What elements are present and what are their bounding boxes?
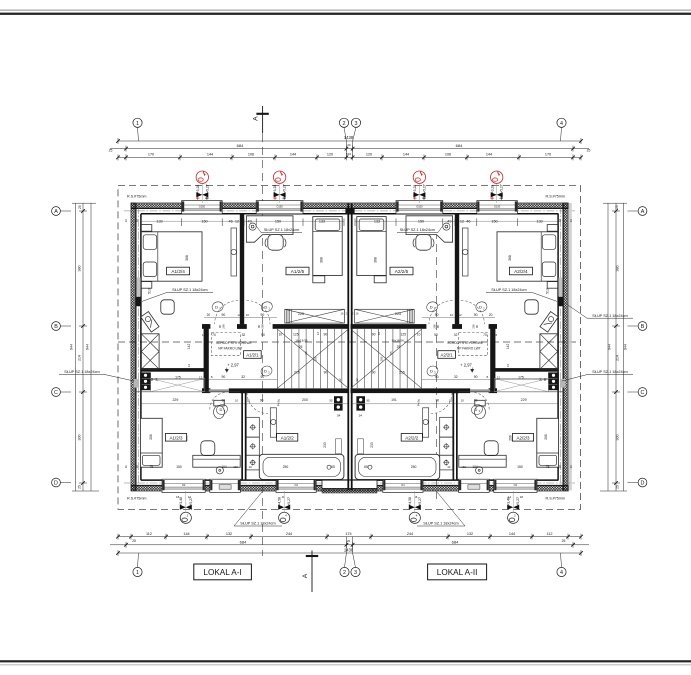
svg-text:66: 66	[543, 378, 547, 381]
svg-text:4: 4	[560, 121, 563, 127]
svg-text:R.S.#75mm: R.S.#75mm	[127, 195, 146, 199]
svg-text:R.S.#75mm: R.S.#75mm	[546, 195, 565, 199]
svg-text:O150: O150	[416, 205, 423, 209]
svg-text:90: 90	[436, 398, 440, 402]
svg-text:65: 65	[331, 465, 335, 469]
svg-text:4: 4	[560, 570, 563, 576]
svg-text:200: 200	[472, 324, 476, 329]
svg-text:16: 16	[569, 219, 573, 223]
svg-text:95: 95	[329, 398, 333, 402]
svg-text:C: C	[641, 390, 645, 396]
svg-text:10: 10	[447, 465, 451, 469]
svg-text:x62: x62	[233, 465, 238, 469]
svg-text:368: 368	[185, 255, 189, 261]
svg-text:90: 90	[474, 313, 478, 317]
svg-text:O4: O4	[294, 483, 298, 487]
svg-text:186: 186	[380, 356, 384, 361]
svg-text:66: 66	[150, 378, 154, 381]
svg-text:10: 10	[450, 313, 454, 317]
svg-text:90: 90	[474, 375, 478, 379]
svg-text:+3,28: +3,28	[196, 185, 200, 194]
svg-text:LOKAL A-II: LOKAL A-II	[437, 568, 478, 577]
svg-text:12: 12	[199, 375, 203, 379]
svg-text:944: 944	[86, 344, 90, 350]
svg-text:+3,48: +3,48	[507, 497, 511, 506]
svg-text:70: 70	[483, 333, 487, 337]
svg-text:18: 18	[135, 465, 139, 469]
svg-text:95: 95	[366, 398, 370, 402]
svg-text:12: 12	[316, 332, 320, 336]
svg-text:142: 142	[506, 343, 510, 349]
svg-text:90: 90	[260, 398, 264, 402]
svg-text:250: 250	[283, 465, 289, 469]
svg-text:32: 32	[241, 375, 245, 379]
svg-text:32: 32	[454, 333, 458, 337]
svg-text:16: 16	[569, 465, 573, 469]
svg-text:510: 510	[545, 288, 549, 294]
svg-text:225: 225	[298, 312, 304, 316]
svg-text:R.S.#75mm: R.S.#75mm	[546, 497, 565, 501]
svg-text:SCHODY STRYCHOWE: SCHODY STRYCHOWE	[216, 341, 253, 345]
svg-text:16x18,56: 16x18,56	[295, 339, 308, 343]
svg-text:944: 944	[607, 344, 611, 350]
svg-text:12: 12	[187, 364, 191, 368]
svg-text:A1/2/4: A1/2/4	[171, 269, 185, 274]
svg-text:90: 90	[324, 332, 328, 336]
svg-text:684: 684	[237, 143, 244, 148]
svg-text:12: 12	[377, 332, 381, 336]
svg-text:+3,28: +3,28	[273, 185, 277, 194]
svg-text:18: 18	[558, 465, 562, 469]
svg-text:SŁUP SZ.1 18x24cm: SŁUP SZ.1 18x24cm	[592, 370, 627, 374]
svg-text:+3,28: +3,28	[413, 185, 417, 194]
svg-text:SŁUP SZ.1 18x24cm: SŁUP SZ.1 18x24cm	[423, 522, 458, 526]
svg-text:300: 300	[78, 435, 82, 441]
svg-text:200: 200	[221, 324, 225, 329]
svg-text:25: 25	[562, 539, 566, 543]
svg-text:229: 229	[521, 398, 527, 402]
svg-text:684: 684	[240, 539, 247, 544]
svg-text:90: 90	[434, 333, 438, 337]
svg-text:944: 944	[624, 344, 628, 350]
svg-text:+5,27: +5,27	[287, 497, 291, 506]
svg-text:34: 34	[337, 413, 341, 417]
svg-text:380: 380	[615, 266, 619, 272]
svg-text:186: 186	[313, 356, 317, 361]
svg-text:SŁUP SZ.1 18x24cm: SŁUP SZ.1 18x24cm	[491, 288, 526, 292]
svg-text:A: A	[252, 116, 259, 121]
svg-text:20: 20	[347, 143, 351, 147]
svg-text:O2: O2	[182, 483, 186, 487]
svg-text:8: 8	[211, 375, 213, 379]
svg-text:944: 944	[70, 344, 74, 350]
svg-text:A: A	[302, 573, 309, 578]
svg-text:684: 684	[452, 539, 459, 544]
svg-text:12: 12	[338, 378, 342, 382]
svg-text:O2: O2	[514, 483, 518, 487]
svg-text:B: B	[54, 324, 58, 330]
svg-text:233: 233	[370, 442, 374, 448]
svg-text:18: 18	[558, 219, 562, 223]
svg-text:+ 2,97: + 2,97	[460, 363, 472, 368]
svg-text:20: 20	[207, 313, 211, 317]
svg-text:+3,48: +3,48	[179, 497, 183, 506]
svg-text:90: 90	[261, 313, 265, 317]
svg-text:SŁUP SZ.1 18x24cm: SŁUP SZ.1 18x24cm	[592, 314, 627, 318]
svg-text:18: 18	[135, 219, 139, 223]
svg-text:250: 250	[411, 465, 417, 469]
svg-text:150: 150	[176, 465, 182, 469]
svg-text:32: 32	[454, 375, 458, 379]
svg-text:1: 1	[136, 121, 139, 127]
svg-text:10: 10	[246, 313, 250, 317]
svg-text:P+Su: P+Su	[277, 398, 281, 406]
svg-text:D: D	[475, 407, 478, 412]
svg-text:D: D	[479, 304, 482, 309]
svg-text:16: 16	[202, 333, 206, 337]
svg-text:+5,27: +5,27	[418, 497, 422, 506]
svg-text:368: 368	[508, 255, 512, 261]
svg-text:10: 10	[247, 398, 251, 402]
svg-text:12: 12	[458, 313, 462, 317]
svg-text:300: 300	[615, 435, 619, 441]
svg-text:380: 380	[78, 266, 82, 272]
svg-text:10: 10	[249, 465, 253, 469]
svg-text:25: 25	[132, 539, 136, 543]
svg-text:90: 90	[435, 375, 439, 379]
svg-text:229: 229	[172, 398, 178, 402]
svg-text:NP FAKRO LWT: NP FAKRO LWT	[457, 347, 481, 351]
svg-text:54: 54	[154, 378, 158, 381]
svg-text:125: 125	[400, 332, 406, 336]
svg-text:O4: O4	[401, 483, 405, 487]
svg-text:A1/2/1: A1/2/1	[246, 353, 259, 358]
svg-text:12: 12	[237, 313, 241, 317]
svg-text:368: 368	[374, 257, 378, 263]
svg-text:20: 20	[489, 313, 493, 317]
svg-text:65: 65	[364, 465, 368, 469]
svg-text:SCHODY STRYCHOWE: SCHODY STRYCHOWE	[447, 341, 484, 345]
svg-text:16: 16	[124, 465, 128, 469]
svg-text:25: 25	[109, 149, 113, 153]
svg-text:142: 142	[187, 343, 191, 349]
svg-text:+3,28: +3,28	[490, 185, 494, 194]
svg-text:+ 2,97: + 2,97	[227, 363, 239, 368]
svg-text:+5,27: +5,27	[422, 184, 426, 193]
svg-text:A: A	[641, 209, 645, 215]
svg-text:16: 16	[124, 219, 128, 223]
svg-text:288: 288	[149, 434, 153, 440]
svg-text:D: D	[220, 407, 223, 412]
svg-text:O150: O150	[494, 205, 501, 209]
svg-text:510: 510	[148, 288, 152, 294]
svg-text:175: 175	[175, 375, 181, 379]
svg-text:34: 34	[359, 413, 363, 417]
svg-text:2: 2	[343, 121, 346, 127]
svg-text:C: C	[54, 390, 58, 396]
svg-text:3: 3	[355, 121, 358, 127]
svg-text:296: 296	[509, 435, 513, 441]
svg-text:D: D	[641, 480, 645, 486]
svg-text:90: 90	[222, 398, 226, 402]
svg-text:P+Su: P+Su	[416, 398, 420, 406]
svg-text:225: 225	[395, 312, 401, 316]
svg-text:90: 90	[324, 370, 328, 374]
svg-text:25: 25	[397, 345, 401, 349]
svg-text:12: 12	[497, 375, 501, 379]
svg-text:12: 12	[506, 364, 510, 368]
svg-text:104: 104	[472, 465, 478, 469]
svg-text:200: 200	[433, 324, 437, 329]
svg-text:R.S.#75mm: R.S.#75mm	[127, 497, 146, 501]
svg-text:10: 10	[449, 398, 453, 402]
svg-text:233: 233	[323, 442, 327, 448]
svg-text:95: 95	[389, 351, 393, 355]
svg-text:10: 10	[417, 332, 421, 336]
svg-text:25: 25	[78, 485, 82, 489]
svg-text:x62: x62	[461, 465, 466, 469]
svg-text:A2/2/3: A2/2/3	[516, 435, 530, 440]
svg-text:SŁUP SZ.1 18x24cm: SŁUP SZ.1 18x24cm	[400, 228, 435, 232]
svg-text:32: 32	[242, 333, 246, 337]
svg-text:O150: O150	[199, 205, 206, 209]
svg-text:510: 510	[346, 152, 351, 156]
svg-text:+5,27: +5,27	[516, 497, 520, 506]
svg-text:20: 20	[347, 539, 351, 543]
svg-text:NP FAKRO LWT: NP FAKRO LWT	[218, 347, 242, 351]
svg-text:125: 125	[293, 332, 299, 336]
svg-text:150: 150	[517, 465, 523, 469]
svg-text:70: 70	[212, 333, 216, 337]
svg-text:+4,58: +4,58	[278, 497, 282, 506]
svg-text:D: D	[264, 304, 267, 309]
svg-text:288: 288	[544, 434, 548, 440]
svg-text:18: 18	[520, 495, 524, 499]
svg-text:D: D	[54, 480, 58, 486]
svg-text:25: 25	[587, 149, 591, 153]
svg-text:3: 3	[354, 570, 357, 576]
svg-text:+5,27: +5,27	[205, 184, 209, 193]
svg-text:8: 8	[487, 375, 489, 379]
svg-text:12: 12	[355, 378, 359, 382]
svg-text:90: 90	[222, 375, 226, 379]
svg-text:A1/2/3: A1/2/3	[169, 435, 183, 440]
svg-text:SŁUP SZ.1 18x24cm: SŁUP SZ.1 18x24cm	[240, 522, 275, 526]
svg-text:D: D	[264, 369, 267, 374]
svg-text:214: 214	[615, 355, 619, 361]
svg-text:B: B	[641, 324, 645, 330]
svg-text:A: A	[54, 209, 58, 215]
svg-text:SŁUP SZ.1 18x24cm: SŁUP SZ.1 18x24cm	[64, 370, 99, 374]
svg-text:75: 75	[150, 465, 154, 469]
svg-text:16: 16	[494, 333, 498, 337]
svg-text:A2/2/4: A2/2/4	[514, 269, 528, 274]
svg-text:214: 214	[78, 355, 82, 361]
svg-text:A1/2/2: A1/2/2	[281, 435, 295, 440]
svg-text:A2/2/5: A2/2/5	[395, 269, 409, 274]
svg-text:10: 10	[235, 398, 239, 402]
svg-text:200: 200	[260, 324, 264, 329]
svg-text:SŁUP SZ.1 18x24cm: SŁUP SZ.1 18x24cm	[264, 228, 299, 232]
svg-text:54: 54	[539, 378, 543, 381]
svg-text:+5,27: +5,27	[189, 497, 193, 506]
svg-text:A2/2/2: A2/2/2	[405, 435, 419, 440]
svg-text:90: 90	[222, 313, 226, 317]
svg-text:+4,58: +4,58	[408, 497, 412, 506]
svg-text:200: 200	[302, 398, 308, 402]
svg-text:1: 1	[136, 570, 139, 576]
svg-text:215: 215	[294, 370, 300, 374]
svg-text:10: 10	[279, 332, 283, 336]
svg-text:104: 104	[221, 465, 227, 469]
svg-text:25: 25	[78, 205, 82, 209]
svg-text:16: 16	[282, 495, 286, 499]
svg-text:25: 25	[299, 345, 303, 349]
svg-text:95: 95	[304, 351, 308, 355]
svg-text:LOKAL A-I: LOKAL A-I	[203, 568, 241, 577]
svg-text:90: 90	[261, 333, 265, 337]
svg-text:90: 90	[372, 370, 376, 374]
svg-text:90: 90	[435, 313, 439, 317]
svg-text:D: D	[430, 304, 433, 309]
svg-text:+5,27: +5,27	[500, 184, 504, 193]
svg-text:75: 75	[546, 465, 550, 469]
svg-text:A2/2/1: A2/2/1	[441, 353, 454, 358]
svg-text:175: 175	[518, 375, 524, 379]
svg-text:SŁUP SZ.1 18x24cm: SŁUP SZ.1 18x24cm	[172, 288, 207, 292]
svg-text:D: D	[430, 369, 433, 374]
svg-text:90: 90	[372, 332, 376, 336]
svg-text:684: 684	[456, 143, 463, 148]
svg-text:D: D	[215, 304, 218, 309]
svg-text:16x18,56: 16x18,56	[391, 339, 404, 343]
svg-text:+5,27: +5,27	[283, 184, 287, 193]
svg-text:368: 368	[319, 257, 323, 263]
svg-text:25: 25	[615, 205, 619, 209]
svg-text:25: 25	[615, 485, 619, 489]
svg-text:10: 10	[461, 398, 465, 402]
svg-text:O150: O150	[276, 205, 283, 209]
svg-text:1438: 1438	[344, 547, 354, 552]
svg-text:90: 90	[474, 398, 478, 402]
svg-text:2: 2	[343, 570, 346, 576]
svg-text:A1/2/5: A1/2/5	[291, 269, 305, 274]
svg-text:191: 191	[391, 398, 397, 402]
svg-text:215: 215	[399, 370, 405, 374]
